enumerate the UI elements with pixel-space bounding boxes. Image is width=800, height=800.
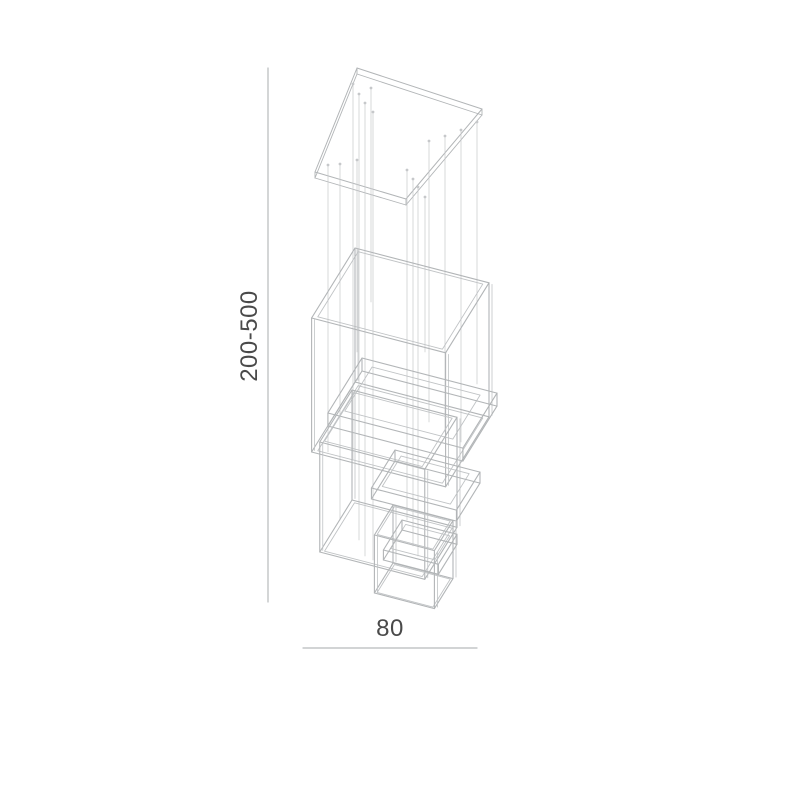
height-dimension-label: 200-500 bbox=[237, 286, 263, 386]
technical-drawing bbox=[0, 0, 800, 800]
width-dimension-label: 80 bbox=[360, 616, 420, 642]
page: 200-500 80 bbox=[0, 0, 800, 800]
